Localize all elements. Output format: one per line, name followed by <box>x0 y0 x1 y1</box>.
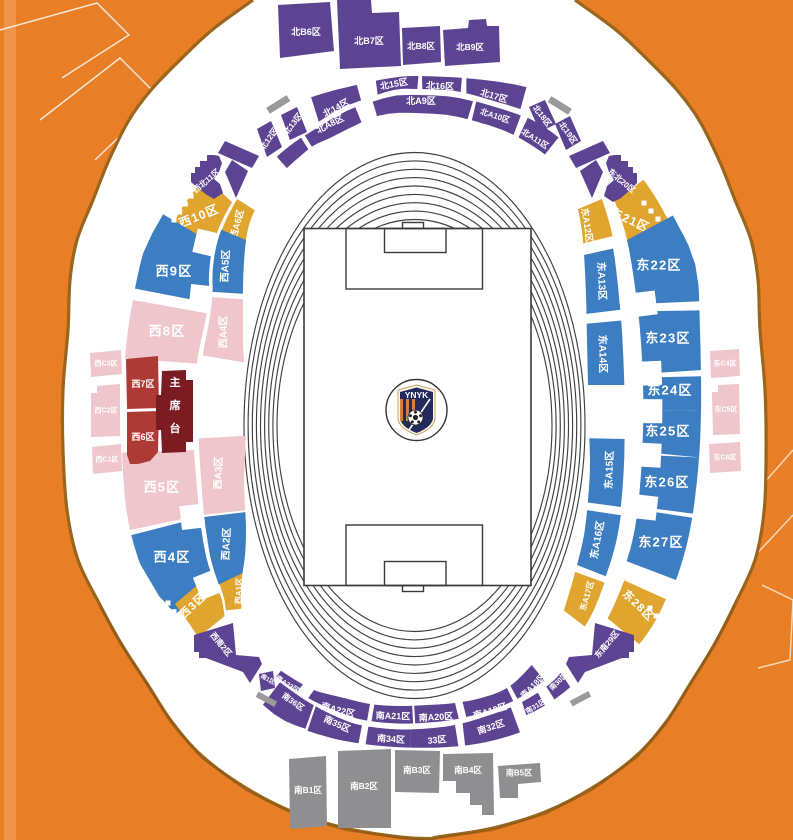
svg-text:东C5区: 东C5区 <box>715 405 738 414</box>
svg-text:33区: 33区 <box>427 734 447 746</box>
svg-text:西A5区: 西A5区 <box>219 249 233 282</box>
svg-text:南34区: 南34区 <box>377 732 406 745</box>
svg-text:西A3区: 西A3区 <box>212 456 225 489</box>
svg-text:西C1区: 西C1区 <box>96 456 119 464</box>
svg-text:东27区: 东27区 <box>638 535 683 550</box>
svg-text:西C2区: 西C2区 <box>95 407 118 415</box>
svg-text:北B6区: 北B6区 <box>291 26 321 37</box>
svg-text:西A1区: 西A1区 <box>234 578 244 605</box>
svg-text:西4区: 西4区 <box>154 550 191 565</box>
svg-text:北B8区: 北B8区 <box>407 41 435 51</box>
svg-text:西A2区: 西A2区 <box>220 527 233 560</box>
svg-text:北A9区: 北A9区 <box>406 95 436 106</box>
svg-text:西6区: 西6区 <box>131 432 154 442</box>
svg-text:南B2区: 南B2区 <box>350 781 378 791</box>
svg-text:东26区: 东26区 <box>644 475 689 490</box>
svg-text:南A20区: 南A20区 <box>418 710 453 723</box>
svg-text:东25区: 东25区 <box>645 424 690 439</box>
svg-text:南A21区: 南A21区 <box>376 709 411 721</box>
svg-text:西C3区: 西C3区 <box>95 360 118 368</box>
svg-text:主席台: 主席台 <box>170 375 181 435</box>
svg-text:南B1区: 南B1区 <box>294 785 322 795</box>
svg-text:南B3区: 南B3区 <box>403 765 431 775</box>
svg-text:东22区: 东22区 <box>636 258 681 273</box>
svg-text:东C6区: 东C6区 <box>714 453 737 462</box>
svg-text:YNYK: YNYK <box>405 390 429 400</box>
svg-text:南B4区: 南B4区 <box>454 765 482 775</box>
svg-text:西7区: 西7区 <box>131 379 154 389</box>
svg-text:西A4区: 西A4区 <box>217 316 229 349</box>
svg-text:北16区: 北16区 <box>426 79 455 92</box>
svg-text:南B5区: 南B5区 <box>506 768 532 778</box>
svg-text:西9区: 西9区 <box>156 264 193 279</box>
svg-text:西5区: 西5区 <box>144 480 181 495</box>
svg-text:东A15区: 东A15区 <box>602 451 616 490</box>
svg-text:东23区: 东23区 <box>645 331 690 346</box>
svg-text:西8区: 西8区 <box>149 324 186 339</box>
svg-text:东C4区: 东C4区 <box>714 359 737 368</box>
svg-text:北B9区: 北B9区 <box>456 42 484 52</box>
svg-text:东A14区: 东A14区 <box>596 335 610 374</box>
svg-text:北B7区: 北B7区 <box>354 35 384 46</box>
